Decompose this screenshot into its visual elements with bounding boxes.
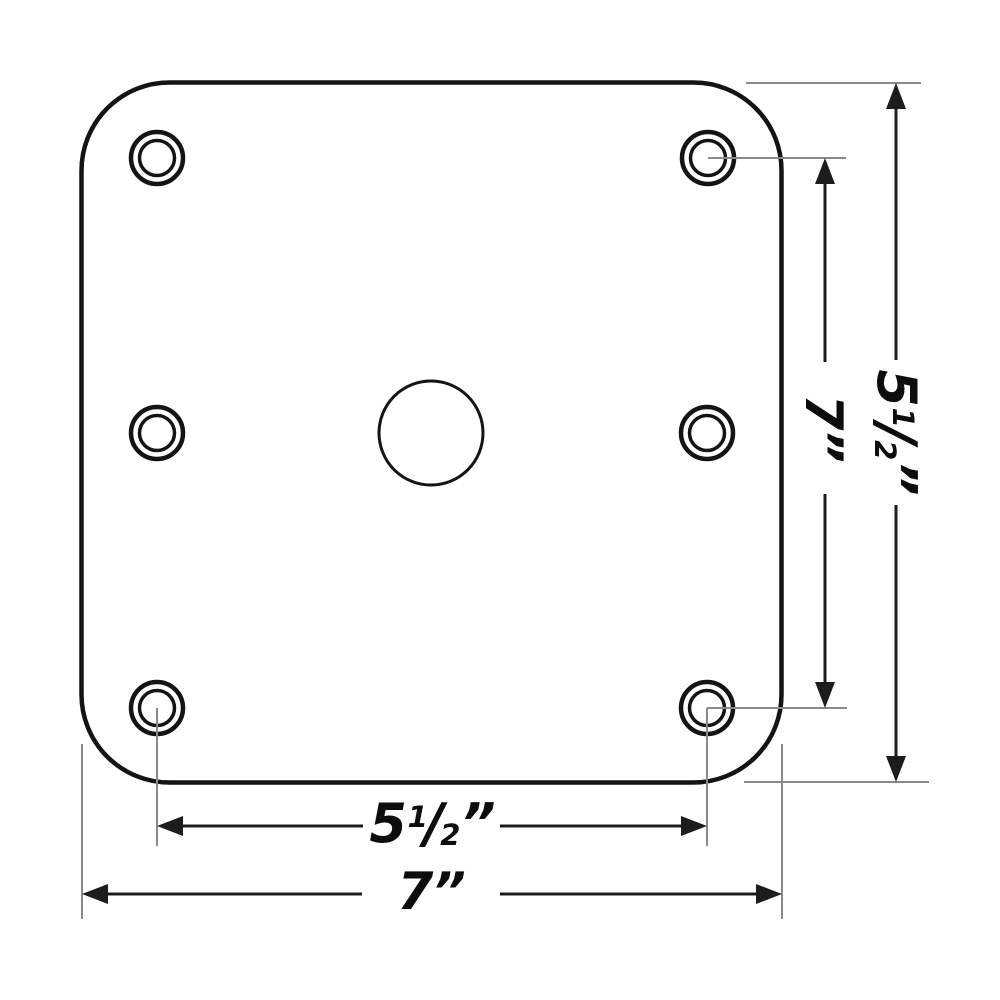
dim-unit-mark: ” [461, 792, 495, 855]
plate-outline [82, 83, 782, 783]
dim-fraction-denominator: 2 [440, 818, 459, 852]
arrowhead-up-icon [886, 83, 906, 109]
dim-label-bottom-hole-spacing: 51/2” [369, 797, 494, 851]
technical-drawing-page: 51/2” 7” 7” 51/2” [0, 0, 1000, 1000]
arrowhead-up-icon [815, 158, 835, 184]
dim-fraction-numerator: 1 [408, 800, 427, 834]
plate-group [82, 83, 782, 783]
dim-value: 7” [793, 394, 853, 462]
dim-fraction-numerator: 1 [886, 408, 920, 427]
arrowhead-left-icon [157, 816, 183, 836]
arrowhead-left-icon [82, 884, 108, 904]
arrowhead-down-icon [815, 682, 835, 708]
arrowhead-down-icon [886, 756, 906, 782]
dim-whole: 5 [369, 792, 406, 855]
dim-fraction-denominator: 2 [868, 440, 902, 459]
dim-label-right-outer: 51/2” [869, 369, 923, 494]
arrowhead-right-icon [681, 816, 707, 836]
dim-label-right-inner: 7” [797, 394, 849, 462]
arrowhead-right-icon [756, 884, 782, 904]
plate-dimension-drawing [0, 0, 1000, 1000]
dim-value: 7” [397, 862, 465, 922]
dim-label-overall-width: 7” [397, 866, 465, 918]
dim-unit-mark: ” [865, 461, 928, 495]
dim-whole: 5 [865, 369, 928, 406]
